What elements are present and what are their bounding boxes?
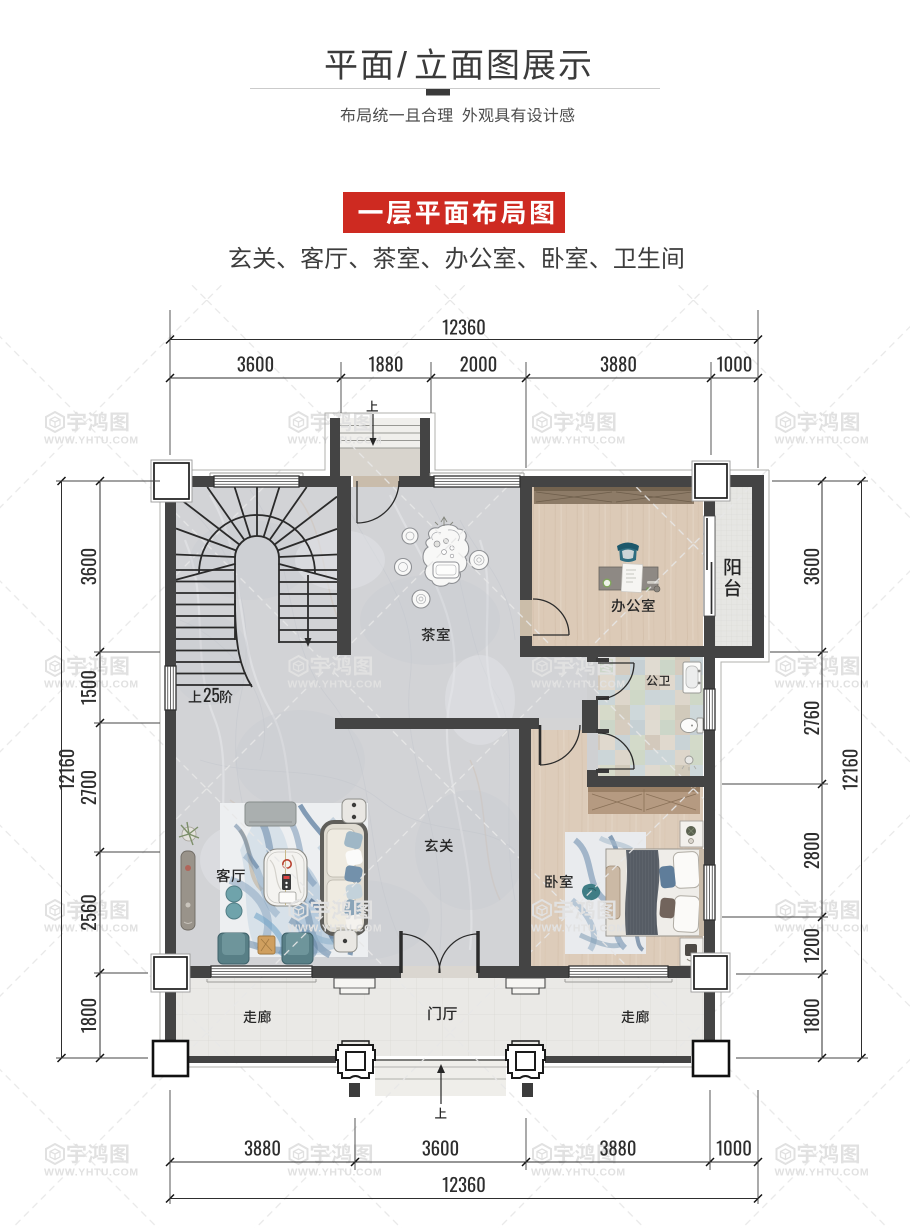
svg-text:WWW.YHTU.COM: WWW.YHTU.COM [288, 679, 383, 691]
svg-text:WWW.YHTU.COM: WWW.YHTU.COM [44, 435, 139, 447]
svg-text:WWW.YHTU.COM: WWW.YHTU.COM [44, 1167, 139, 1179]
svg-text:WWW.YHTU.COM: WWW.YHTU.COM [775, 435, 870, 447]
svg-text:WWW.YHTU.COM: WWW.YHTU.COM [531, 1167, 626, 1179]
svg-text:WWW.YHTU.COM: WWW.YHTU.COM [531, 435, 626, 447]
svg-text:WWW.YHTU.COM: WWW.YHTU.COM [775, 1167, 870, 1179]
svg-text:WWW.YHTU.COM: WWW.YHTU.COM [44, 679, 139, 691]
svg-text:WWW.YHTU.COM: WWW.YHTU.COM [531, 679, 626, 691]
svg-text:WWW.YHTU.COM: WWW.YHTU.COM [288, 1167, 383, 1179]
svg-text:/: / [397, 44, 407, 85]
svg-text:WWW.YHTU.COM: WWW.YHTU.COM [44, 923, 139, 935]
svg-text:WWW.YHTU.COM: WWW.YHTU.COM [531, 923, 626, 935]
svg-text:WWW.YHTU.COM: WWW.YHTU.COM [288, 923, 383, 935]
